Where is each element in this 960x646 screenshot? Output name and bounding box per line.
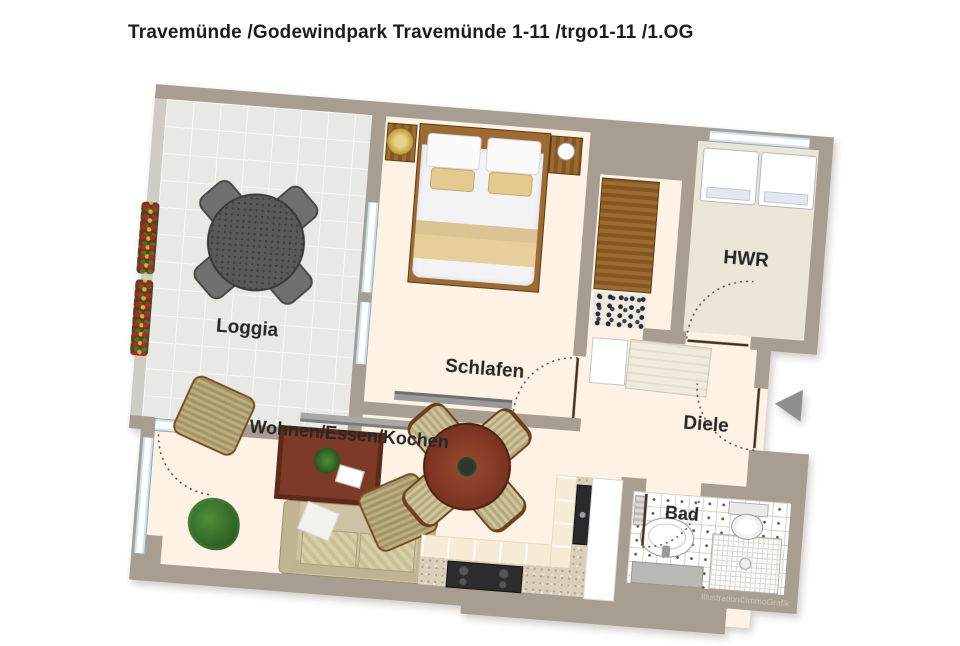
floor-plan: Loggia Schlafen HWR Diele Wohnen/Essen/K… <box>116 84 834 646</box>
hwr-door-arc <box>687 277 754 344</box>
bath-door-leaf <box>642 494 646 546</box>
bedroom-door-leaf <box>573 358 578 418</box>
entrance-door-leaf <box>754 388 759 448</box>
page-title: Travemünde /Godewindpark Travemünde 1-11… <box>128 22 694 44</box>
hwr-door-leaf <box>688 341 749 346</box>
balcony-door-arc <box>154 434 214 494</box>
